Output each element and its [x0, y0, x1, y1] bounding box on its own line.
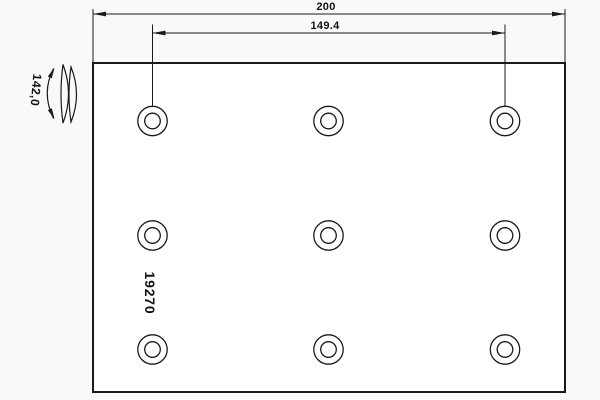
dim-extension-lines-width — [93, 9, 565, 63]
arc-arrowhead-top-icon — [48, 68, 55, 79]
rivet-hole-r3c1 — [138, 335, 167, 364]
rivet-hole-r2c3 — [490, 221, 519, 250]
lining-section-crescent-inner — [61, 65, 69, 124]
arrowhead-right-icon — [492, 31, 505, 36]
technical-drawing-canvas: 200 149.4 142,0 19270 — [0, 0, 600, 400]
rivet-hole-r2c2 — [314, 221, 343, 250]
arrowhead-left-icon — [93, 12, 106, 17]
drawing-geometry — [0, 0, 600, 400]
part-number-label: 19270 — [142, 272, 158, 315]
rivet-hole-r1c2 — [314, 106, 343, 135]
lining-section-crescent-outer — [69, 67, 77, 122]
dimension-curve-radius-label: 142,0 — [28, 73, 45, 107]
arc-arrowhead-bottom-icon — [48, 108, 55, 119]
curve-radius-symbol — [47, 65, 76, 124]
rivet-hole-r1c1 — [138, 106, 167, 135]
arrowhead-right-icon — [552, 12, 565, 17]
rivet-hole-r3c3 — [490, 335, 519, 364]
rivet-hole-r1c3 — [490, 106, 519, 135]
dimension-overall-width-label: 200 — [316, 1, 335, 13]
arrowhead-left-icon — [153, 31, 166, 36]
rivet-hole-r2c1 — [138, 221, 167, 250]
dimension-hole-spacing-label: 149.4 — [310, 20, 339, 32]
rivet-hole-r3c2 — [314, 335, 343, 364]
